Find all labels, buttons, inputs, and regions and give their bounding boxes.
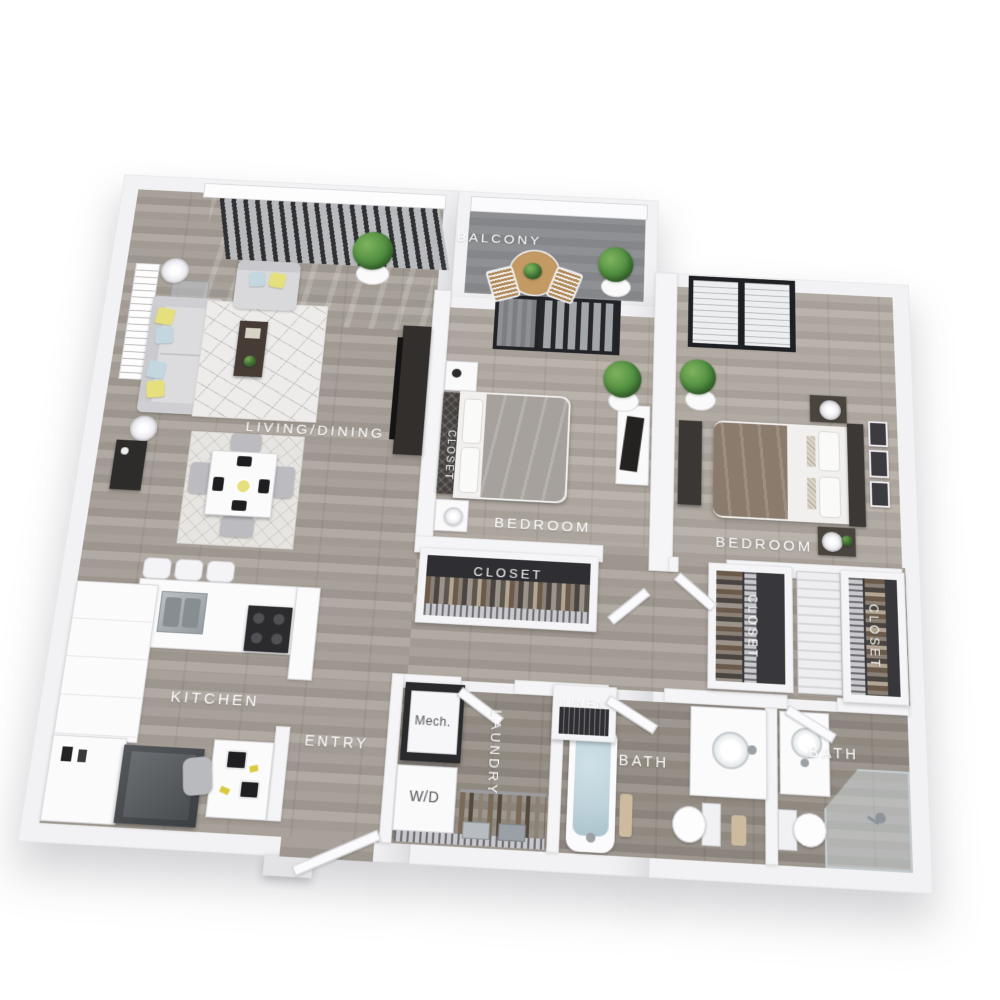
- bathtub: [565, 726, 618, 854]
- bedroom2-accent-pillow-1: [806, 436, 815, 467]
- bedroom2-blanket: [713, 422, 788, 519]
- bedroom1-pillow-top: [461, 398, 483, 444]
- burner-1: [253, 613, 265, 624]
- burner-3: [250, 632, 262, 644]
- coffee-table-books: [245, 328, 261, 339]
- sofa-pillow-yellow-2: [146, 380, 164, 398]
- bathtub-water: [572, 733, 611, 837]
- bath1-sink: [712, 731, 750, 771]
- bath1-towel-stack: [731, 815, 746, 846]
- bedroom1-lamp: [443, 507, 464, 527]
- washer-dryer-label: W/D: [409, 787, 440, 806]
- bedroom1-nightstand-bottom: [434, 499, 470, 533]
- linen-closet: [551, 684, 617, 743]
- bedroom2-lamp-bottom: [822, 531, 843, 552]
- bedroom-1-window-blinds: [538, 300, 615, 352]
- bath1-vanity: [689, 706, 767, 800]
- coffee-table-plant: [243, 355, 257, 367]
- bedroom1-bed: [453, 391, 571, 504]
- bedroom2-wall-frame-3: [870, 481, 890, 508]
- sofa-pillow-blue-1: [155, 327, 173, 344]
- cabinet-decor-1: [61, 746, 74, 761]
- dining-chair-top: [230, 433, 263, 453]
- desk-accent-1: [219, 786, 230, 796]
- bedroom1-nightstand-top: [444, 360, 478, 391]
- bedroom1-duvet: [480, 394, 569, 502]
- burner-4: [271, 633, 283, 645]
- bedroom2-headboard: [847, 423, 866, 527]
- bathtub-faucet: [586, 833, 596, 843]
- stove: [243, 605, 292, 653]
- closet-sliding-door: [796, 571, 843, 696]
- bath1-towel: [619, 794, 633, 838]
- kitchen-sink: [156, 591, 207, 635]
- floor-plan-scene: BALCONY LIVING/DINING BEDROOM BEDROOM CL…: [0, 0, 1000, 1000]
- bedroom-1-window: [493, 294, 622, 355]
- bedroom1-pillow-bottom: [458, 447, 481, 494]
- bath-1-label: BATH: [619, 751, 670, 771]
- bar-stool-3: [205, 560, 235, 583]
- desk-chair: [183, 756, 213, 796]
- bedroom2-pillow-top: [818, 431, 840, 472]
- floor-plan: BALCONY LIVING/DINING BEDROOM BEDROOM CL…: [0, 64, 1000, 1000]
- bedroom2-dresser: [678, 420, 703, 505]
- bedroom1-tv: [620, 416, 645, 472]
- bar-stool-2: [174, 559, 205, 582]
- bedroom-2-blind-left: [693, 280, 739, 345]
- bar-stool-1: [142, 557, 173, 580]
- bedroom1-dresser: [615, 404, 650, 485]
- dining-centerpiece: [234, 478, 252, 495]
- bar-cart-decor: [120, 447, 129, 455]
- placemat-right: [258, 479, 270, 493]
- bedroom2-nightstand-bottom: [818, 526, 856, 556]
- right-closet-2-label: CLOSET: [866, 604, 882, 670]
- bedroom2-bed: [713, 420, 849, 524]
- cabinet-decor-2: [77, 749, 87, 762]
- desk-tablet: [238, 780, 261, 800]
- laundry-basket-2: [498, 823, 526, 842]
- bedroom2-nightstand-top: [810, 395, 847, 424]
- sink-bowl-right: [181, 598, 201, 628]
- bedroom2-wall-frame-1: [868, 421, 888, 447]
- bedroom-1-curtain: [497, 298, 537, 348]
- bedroom1-alarm-clock: [452, 369, 462, 378]
- dining-table: [204, 450, 278, 518]
- bedroom2-wall-frame-2: [869, 450, 889, 478]
- laundry-basket-1: [462, 821, 491, 840]
- bedroom-2-window: [688, 276, 796, 353]
- desk-accent-2: [249, 765, 258, 773]
- placemat-bottom: [231, 500, 247, 511]
- bath-2-label: BATH: [809, 743, 860, 763]
- bedroom-2-blind-right: [745, 283, 790, 348]
- right-closet-1-clothes: [716, 570, 743, 682]
- bedroom-1-doorway: [603, 545, 649, 565]
- bedroom2-nightstand-plant: [842, 535, 853, 546]
- linen-label: LINEN: [562, 697, 606, 712]
- hall-closet: [415, 547, 599, 632]
- dining-chair-bottom: [219, 515, 255, 537]
- mech-label: Mech.: [414, 713, 451, 729]
- right-closet-1-label: CLOSET: [745, 594, 759, 660]
- wall-bedroom2-hall-a: [668, 556, 678, 572]
- bath2-faucet: [801, 758, 809, 767]
- bath1-faucet: [747, 745, 756, 755]
- entry-desk: [205, 739, 274, 821]
- placemat-top: [237, 456, 253, 467]
- bedroom2-lamp-top: [819, 400, 841, 421]
- entry-label: ENTRY: [304, 732, 370, 752]
- armchair: [232, 260, 301, 312]
- burner-2: [273, 614, 285, 625]
- desk-laptop: [224, 749, 248, 770]
- placemat-left: [212, 477, 224, 491]
- bedroom2-pillow-bottom: [819, 476, 841, 518]
- armchair-back: [237, 260, 301, 273]
- armchair-pillow-blue: [249, 272, 265, 287]
- bedroom2-accent-pillow-2: [807, 478, 816, 510]
- sink-bowl-left: [162, 597, 182, 627]
